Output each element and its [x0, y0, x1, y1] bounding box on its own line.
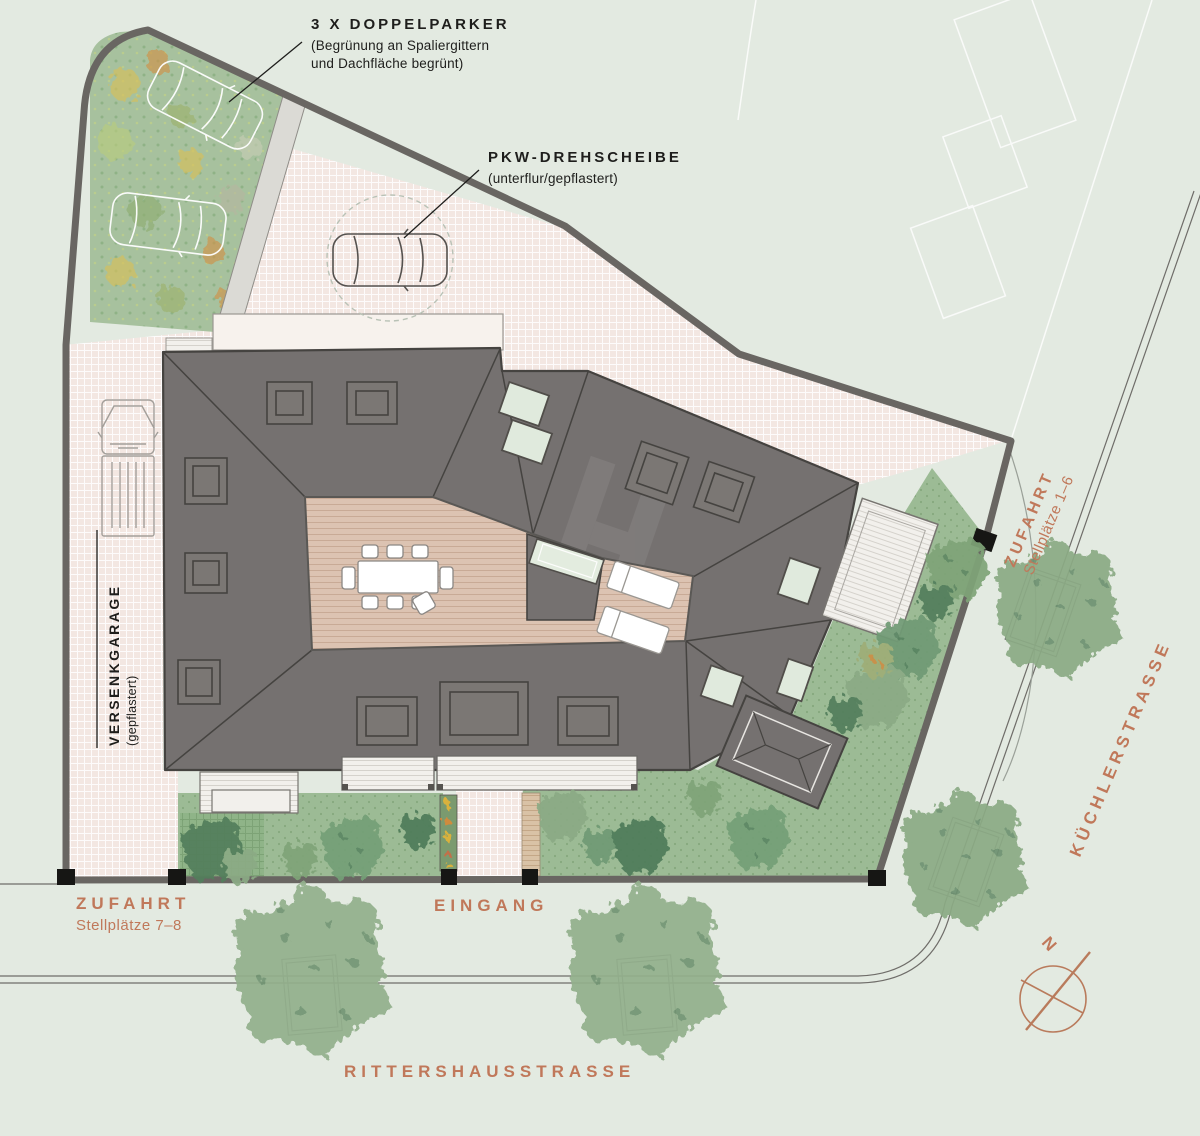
label-doppelparker: 3 X DOPPELPARKER (Begrünung an Spaliergi… — [311, 16, 510, 72]
label-zufahrt-sued-title: ZUFAHRT — [76, 894, 190, 914]
label-doppelparker-sub1: (Begrünung an Spaliergittern — [311, 37, 510, 55]
site-plan: 3 X DOPPELPARKER (Begrünung an Spaliergi… — [0, 0, 1200, 1136]
label-drehscheibe-sub: (unterflur/gepflastert) — [488, 170, 682, 188]
label-eingang-title: EINGANG — [434, 896, 548, 916]
label-zufahrt-sued-sub: Stellplätze 7–8 — [76, 917, 190, 934]
label-versenkgarage-title: VERSENKGARAGE — [106, 584, 122, 746]
label-eingang: EINGANG — [434, 896, 548, 916]
north-terrace — [166, 314, 503, 352]
label-doppelparker-title: 3 X DOPPELPARKER — [311, 16, 510, 33]
label-rittershausstrasse: RITTERSHAUSSTRASSE — [344, 1062, 635, 1082]
street-name-rittershausstrasse: RITTERSHAUSSTRASSE — [344, 1062, 635, 1082]
southwest-terrace — [200, 772, 298, 813]
label-drehscheibe: PKW-DREHSCHEIBE (unterflur/gepflastert) — [488, 149, 682, 188]
label-drehscheibe-title: PKW-DREHSCHEIBE — [488, 149, 682, 166]
label-doppelparker-sub2: und Dachfläche begrünt) — [311, 55, 510, 73]
south-balconies — [342, 756, 637, 790]
flowerbed — [440, 795, 457, 871]
label-versenkgarage: VERSENKGARAGE (gepflastert) — [106, 584, 139, 746]
label-zufahrt-sued: ZUFAHRT Stellplätze 7–8 — [76, 894, 190, 934]
wood-walkway — [522, 793, 540, 880]
label-versenkgarage-sub: (gepflastert) — [125, 584, 139, 746]
